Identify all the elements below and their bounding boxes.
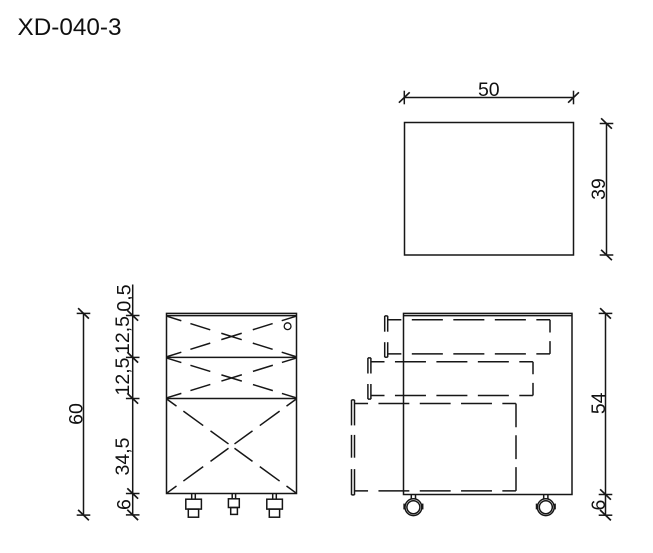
svg-text:6: 6	[114, 499, 136, 510]
svg-text:12,5: 12,5	[112, 316, 134, 354]
svg-text:0,5: 0,5	[114, 284, 136, 311]
svg-text:XD-040-3: XD-040-3	[18, 14, 122, 41]
svg-text:34,5: 34,5	[112, 437, 134, 475]
svg-text:6: 6	[588, 500, 610, 511]
svg-text:54: 54	[588, 392, 610, 414]
svg-text:50: 50	[478, 79, 500, 101]
svg-text:60: 60	[66, 403, 88, 425]
svg-text:12,5: 12,5	[112, 357, 134, 395]
svg-text:39: 39	[588, 178, 610, 200]
